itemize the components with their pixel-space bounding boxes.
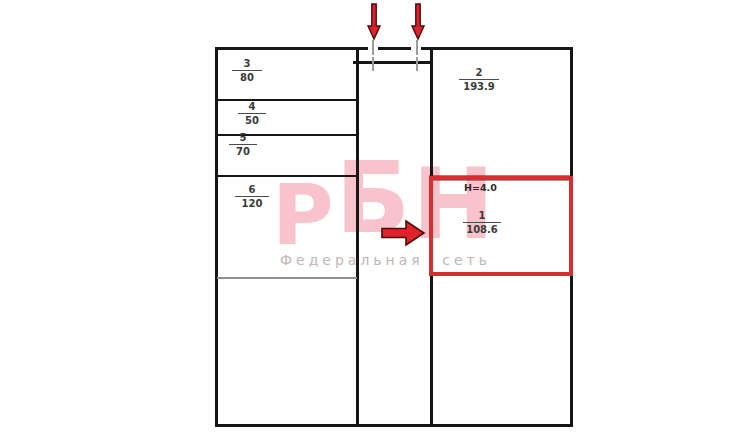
- room-number: 4: [238, 101, 266, 114]
- room-label-6: 6 120: [235, 184, 269, 209]
- entrance-arrow-down-icon: [367, 3, 381, 41]
- ceiling-height-note: H=4.0: [464, 182, 497, 193]
- outer-wall-bottom: [215, 424, 573, 427]
- watermark-tagline-word: Федеральная: [280, 252, 424, 268]
- room-number: 3: [232, 58, 262, 71]
- room-area: 70: [229, 145, 257, 157]
- watermark-letter: Р: [272, 176, 336, 256]
- door-tick: [416, 57, 418, 71]
- door-tick: [372, 40, 374, 55]
- room-area: 108.6: [463, 223, 501, 235]
- floor-plan-image: Р Б Н Федеральная сеть: [0, 0, 750, 435]
- highlighted-room-outline: [429, 176, 573, 276]
- vestibule-inner-wall: [353, 61, 433, 64]
- room-area: 120: [235, 197, 269, 209]
- room-area: 80: [232, 71, 262, 83]
- outer-wall-top: [215, 47, 573, 50]
- room-label-3: 3 80: [232, 58, 262, 83]
- room-area: 193.9: [459, 80, 499, 92]
- room-number: 1: [463, 210, 501, 223]
- room-area: 50: [238, 114, 266, 126]
- door-tick: [416, 40, 418, 55]
- room-label-1: 1 108.6: [463, 210, 501, 235]
- selection-arrow-right-icon: [381, 219, 426, 247]
- room-number: 6: [235, 184, 269, 197]
- corridor-wall-left: [356, 47, 359, 427]
- room-number: 5: [229, 132, 257, 145]
- room-label-2: 2 193.9: [459, 67, 499, 92]
- room-label-5: 5 70: [229, 132, 257, 157]
- door-tick: [372, 57, 374, 71]
- outer-wall-left: [215, 47, 218, 427]
- room-label-4: 4 50: [238, 101, 266, 126]
- partition-wall: [217, 175, 357, 177]
- room-number: 2: [459, 67, 499, 80]
- entrance-arrow-down-icon: [411, 3, 425, 41]
- partition-wall-gray: [217, 277, 357, 279]
